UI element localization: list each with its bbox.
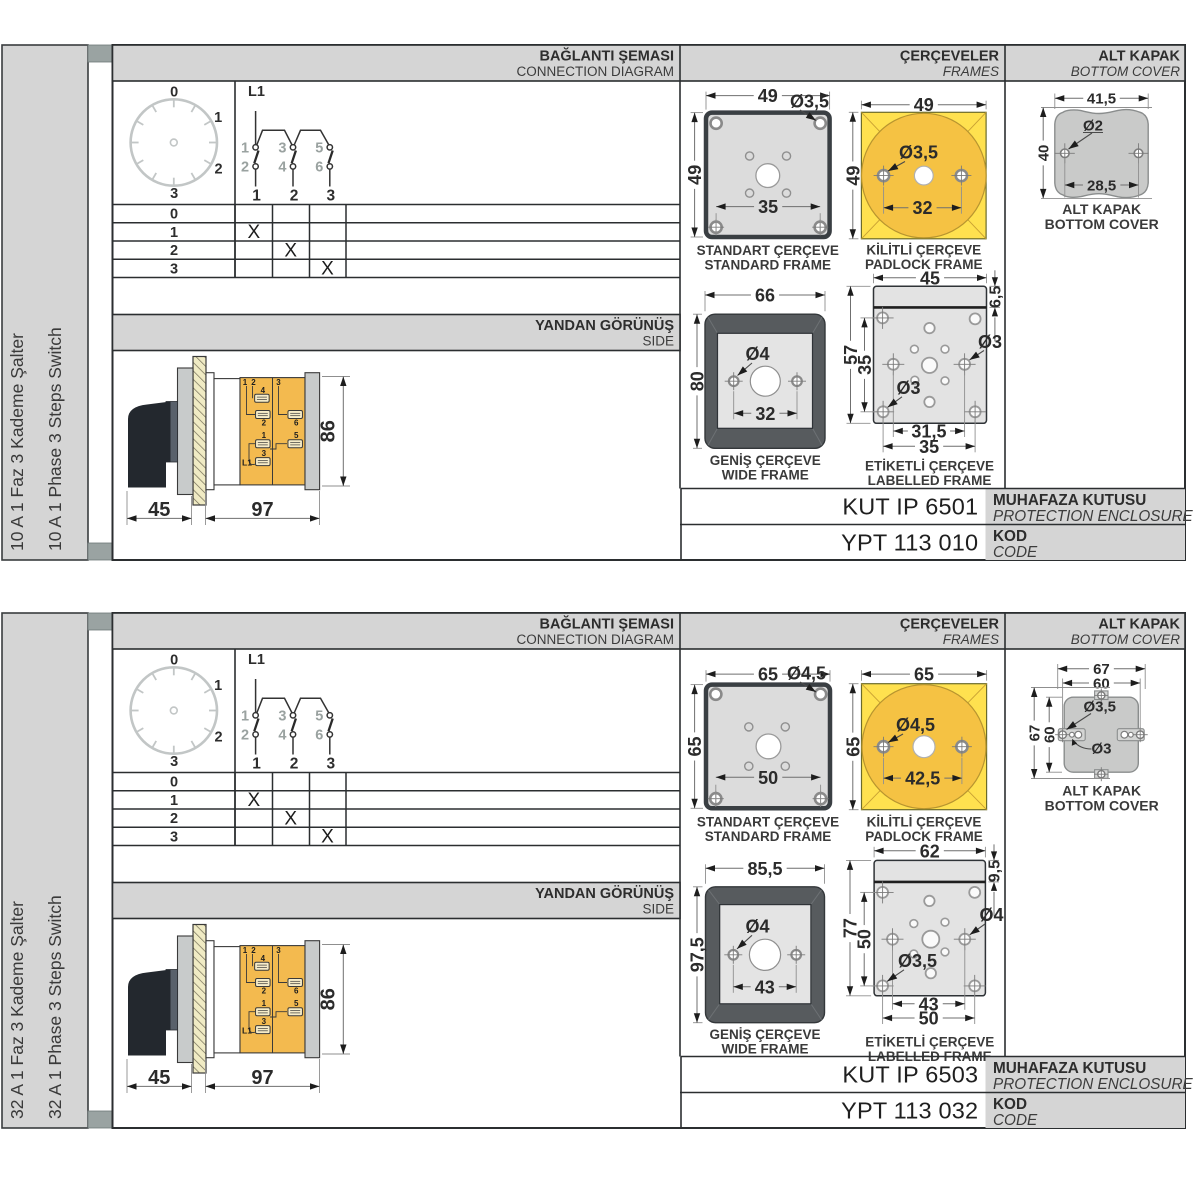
svg-text:32: 32 [912, 198, 932, 218]
svg-text:CODE: CODE [993, 1112, 1038, 1129]
svg-text:2: 2 [262, 987, 267, 996]
svg-text:66: 66 [755, 285, 775, 305]
svg-text:Ø3,5: Ø3,5 [790, 92, 829, 112]
svg-text:PROTECTION ENCLOSURE: PROTECTION ENCLOSURE [993, 1076, 1194, 1093]
svg-text:SIDE: SIDE [642, 334, 674, 349]
svg-text:YPT 113 010: YPT 113 010 [841, 530, 978, 556]
svg-text:3: 3 [278, 140, 286, 156]
svg-text:60: 60 [1042, 726, 1059, 743]
svg-text:65: 65 [843, 737, 863, 757]
svg-text:28,5: 28,5 [1087, 177, 1116, 194]
svg-text:62: 62 [920, 841, 940, 861]
svg-text:4: 4 [261, 386, 266, 395]
svg-text:4: 4 [261, 954, 266, 963]
svg-text:1: 1 [243, 946, 248, 955]
svg-text:5: 5 [315, 708, 323, 724]
svg-text:YANDAN GÖRÜNÜŞ: YANDAN GÖRÜNÜŞ [535, 317, 674, 334]
svg-text:6: 6 [315, 727, 323, 743]
svg-text:0: 0 [170, 653, 178, 669]
svg-text:Ø4,5: Ø4,5 [787, 664, 826, 684]
svg-text:FRAMES: FRAMES [943, 64, 999, 79]
svg-text:1: 1 [252, 756, 261, 773]
svg-text:3: 3 [170, 186, 178, 202]
svg-text:2: 2 [170, 243, 178, 259]
svg-text:0: 0 [170, 85, 178, 101]
svg-text:0: 0 [170, 207, 178, 223]
svg-text:L1: L1 [242, 1026, 252, 1036]
svg-text:65: 65 [914, 665, 934, 685]
svg-text:3: 3 [326, 756, 335, 773]
svg-text:49: 49 [685, 165, 705, 185]
svg-text:3: 3 [170, 829, 178, 845]
svg-text:2: 2 [215, 162, 223, 178]
svg-text:9,5: 9,5 [987, 860, 1004, 882]
svg-text:X: X [284, 240, 297, 261]
svg-text:L1: L1 [242, 458, 252, 468]
svg-text:80: 80 [687, 371, 707, 391]
svg-text:35: 35 [758, 197, 778, 217]
svg-text:49: 49 [758, 86, 778, 106]
svg-text:60: 60 [1093, 675, 1110, 692]
svg-text:32: 32 [755, 404, 775, 424]
svg-text:ÇERÇEVELER: ÇERÇEVELER [900, 49, 1000, 65]
svg-text:BOTTOM COVER: BOTTOM COVER [1045, 216, 1159, 232]
svg-text:STANDART ÇERÇEVE: STANDART ÇERÇEVE [697, 243, 839, 258]
svg-text:STANDART ÇERÇEVE: STANDART ÇERÇEVE [697, 814, 839, 829]
svg-text:ALT KAPAK: ALT KAPAK [1062, 201, 1141, 217]
svg-text:KUT IP 6503: KUT IP 6503 [842, 1062, 978, 1088]
svg-text:2: 2 [262, 419, 267, 428]
svg-text:KİLİTLİ ÇERÇEVE: KİLİTLİ ÇERÇEVE [866, 243, 981, 258]
svg-text:1: 1 [252, 188, 261, 205]
svg-text:ALT KAPAK: ALT KAPAK [1062, 783, 1141, 799]
svg-text:BOTTOM COVER: BOTTOM COVER [1071, 64, 1181, 79]
svg-text:3: 3 [262, 449, 267, 458]
svg-text:1: 1 [262, 431, 267, 440]
svg-text:1: 1 [170, 793, 178, 809]
svg-text:KİLİTLİ ÇERÇEVE: KİLİTLİ ÇERÇEVE [867, 814, 982, 829]
svg-text:SIDE: SIDE [642, 902, 674, 917]
svg-text:85,5: 85,5 [747, 859, 782, 879]
svg-text:ALT KAPAK: ALT KAPAK [1098, 617, 1180, 633]
svg-text:3: 3 [262, 1017, 267, 1026]
svg-text:4: 4 [278, 727, 286, 743]
svg-text:6: 6 [315, 159, 323, 175]
svg-text:97: 97 [251, 1067, 273, 1089]
svg-text:X: X [247, 790, 260, 811]
svg-text:32 A 1 Faz 3 Kademe Şalter: 32 A 1 Faz 3 Kademe Şalter [7, 901, 27, 1119]
svg-text:Ø4: Ø4 [746, 916, 770, 936]
svg-text:2: 2 [170, 811, 178, 827]
svg-text:3: 3 [276, 946, 281, 955]
svg-text:2: 2 [251, 946, 256, 955]
svg-text:BOTTOM COVER: BOTTOM COVER [1045, 798, 1159, 814]
svg-text:GENİŞ ÇERÇEVE: GENİŞ ÇERÇEVE [710, 453, 821, 468]
svg-text:5: 5 [294, 431, 299, 440]
svg-text:MUHAFAZA KUTUSU: MUHAFAZA KUTUSU [993, 492, 1146, 509]
svg-text:ETİKETLİ ÇERÇEVE: ETİKETLİ ÇERÇEVE [865, 1034, 994, 1049]
svg-text:Ø3,5: Ø3,5 [898, 951, 937, 971]
svg-text:KOD: KOD [993, 528, 1027, 545]
svg-text:86: 86 [318, 988, 340, 1010]
svg-text:CODE: CODE [993, 544, 1038, 561]
svg-text:10 A 1 Phase 3 Steps Switch: 10 A 1 Phase 3 Steps Switch [45, 327, 65, 551]
svg-text:4: 4 [278, 159, 286, 175]
svg-text:2: 2 [251, 378, 256, 387]
svg-text:Ø3: Ø3 [978, 332, 1002, 352]
svg-text:43: 43 [755, 977, 775, 997]
svg-text:Ø4,5: Ø4,5 [896, 715, 935, 735]
svg-text:45: 45 [148, 499, 170, 521]
svg-text:CONNECTION DIAGRAM: CONNECTION DIAGRAM [516, 632, 674, 647]
svg-text:35: 35 [919, 437, 939, 457]
svg-text:YANDAN GÖRÜNÜŞ: YANDAN GÖRÜNÜŞ [535, 885, 674, 902]
svg-text:Ø4: Ø4 [746, 344, 770, 364]
svg-text:50: 50 [758, 768, 778, 788]
svg-text:YPT 113 032: YPT 113 032 [841, 1098, 978, 1124]
svg-text:WIDE FRAME: WIDE FRAME [722, 468, 809, 483]
svg-text:Ø3,5: Ø3,5 [899, 143, 938, 163]
svg-text:5: 5 [294, 999, 299, 1008]
svg-text:PROTECTION ENCLOSURE: PROTECTION ENCLOSURE [993, 508, 1194, 525]
svg-text:2: 2 [290, 188, 299, 205]
svg-text:FRAMES: FRAMES [943, 632, 999, 647]
svg-text:5: 5 [315, 140, 323, 156]
svg-text:3: 3 [326, 188, 335, 205]
svg-text:X: X [247, 222, 260, 243]
svg-text:10 A 1 Faz 3 Kademe Şalter: 10 A 1 Faz 3 Kademe Şalter [7, 333, 27, 551]
svg-text:0: 0 [170, 775, 178, 791]
svg-text:2: 2 [241, 727, 249, 743]
svg-text:1: 1 [243, 378, 248, 387]
svg-text:Ø3: Ø3 [1092, 741, 1112, 758]
svg-text:BAĞLANTI ŞEMASI: BAĞLANTI ŞEMASI [539, 615, 674, 633]
svg-text:X: X [321, 259, 334, 280]
svg-text:L1: L1 [248, 652, 265, 668]
svg-text:2: 2 [215, 730, 223, 746]
svg-text:BAĞLANTI ŞEMASI: BAĞLANTI ŞEMASI [539, 47, 674, 65]
svg-text:2: 2 [290, 756, 299, 773]
svg-text:97,5: 97,5 [687, 937, 707, 972]
svg-text:KOD: KOD [993, 1096, 1027, 1113]
svg-text:Ø2: Ø2 [1083, 118, 1103, 135]
svg-text:45: 45 [148, 1067, 170, 1089]
svg-text:50: 50 [855, 929, 875, 949]
svg-text:3: 3 [170, 261, 178, 277]
svg-text:GENİŞ ÇERÇEVE: GENİŞ ÇERÇEVE [709, 1027, 820, 1042]
svg-text:6: 6 [294, 987, 299, 996]
svg-text:BOTTOM COVER: BOTTOM COVER [1071, 632, 1181, 647]
svg-text:1: 1 [241, 140, 249, 156]
svg-text:65: 65 [685, 736, 705, 756]
svg-text:STANDARD FRAME: STANDARD FRAME [705, 258, 832, 273]
svg-text:ALT KAPAK: ALT KAPAK [1098, 49, 1180, 65]
svg-text:41,5: 41,5 [1087, 91, 1116, 108]
svg-text:Ø4: Ø4 [980, 905, 1004, 925]
svg-text:3: 3 [276, 378, 281, 387]
svg-text:CONNECTION DIAGRAM: CONNECTION DIAGRAM [516, 64, 674, 79]
svg-text:X: X [284, 808, 297, 829]
svg-text:49: 49 [843, 166, 863, 186]
svg-text:1: 1 [214, 678, 222, 694]
svg-text:97: 97 [251, 499, 273, 521]
svg-text:2: 2 [241, 159, 249, 175]
svg-text:49: 49 [914, 95, 934, 115]
svg-text:50: 50 [919, 1008, 939, 1028]
svg-text:3: 3 [170, 754, 178, 770]
svg-text:Ø3: Ø3 [897, 378, 921, 398]
svg-text:45: 45 [920, 268, 940, 288]
svg-text:6: 6 [294, 419, 299, 428]
svg-text:STANDARD FRAME: STANDARD FRAME [705, 829, 832, 844]
svg-text:WIDE FRAME: WIDE FRAME [722, 1042, 809, 1057]
svg-text:35: 35 [855, 355, 875, 375]
svg-text:ETİKETLİ ÇERÇEVE: ETİKETLİ ÇERÇEVE [865, 459, 994, 474]
svg-text:65: 65 [758, 665, 778, 685]
svg-text:6,5: 6,5 [987, 286, 1004, 308]
svg-text:KUT IP 6501: KUT IP 6501 [842, 494, 978, 520]
svg-text:32 A 1 Phase 3 Steps Switch: 32 A 1 Phase 3 Steps Switch [45, 895, 65, 1119]
svg-text:MUHAFAZA KUTUSU: MUHAFAZA KUTUSU [993, 1060, 1146, 1077]
svg-text:1: 1 [170, 225, 178, 241]
svg-text:LABELLED FRAME: LABELLED FRAME [868, 473, 992, 488]
svg-text:L1: L1 [248, 84, 265, 100]
svg-text:86: 86 [318, 420, 340, 442]
svg-text:40: 40 [1036, 145, 1053, 162]
svg-text:42,5: 42,5 [905, 769, 940, 789]
svg-text:X: X [321, 827, 334, 848]
svg-text:1: 1 [262, 999, 267, 1008]
svg-text:ÇERÇEVELER: ÇERÇEVELER [900, 617, 1000, 633]
svg-text:1: 1 [214, 110, 222, 126]
svg-text:1: 1 [241, 708, 249, 724]
svg-text:Ø3,5: Ø3,5 [1084, 699, 1117, 716]
svg-text:3: 3 [278, 708, 286, 724]
